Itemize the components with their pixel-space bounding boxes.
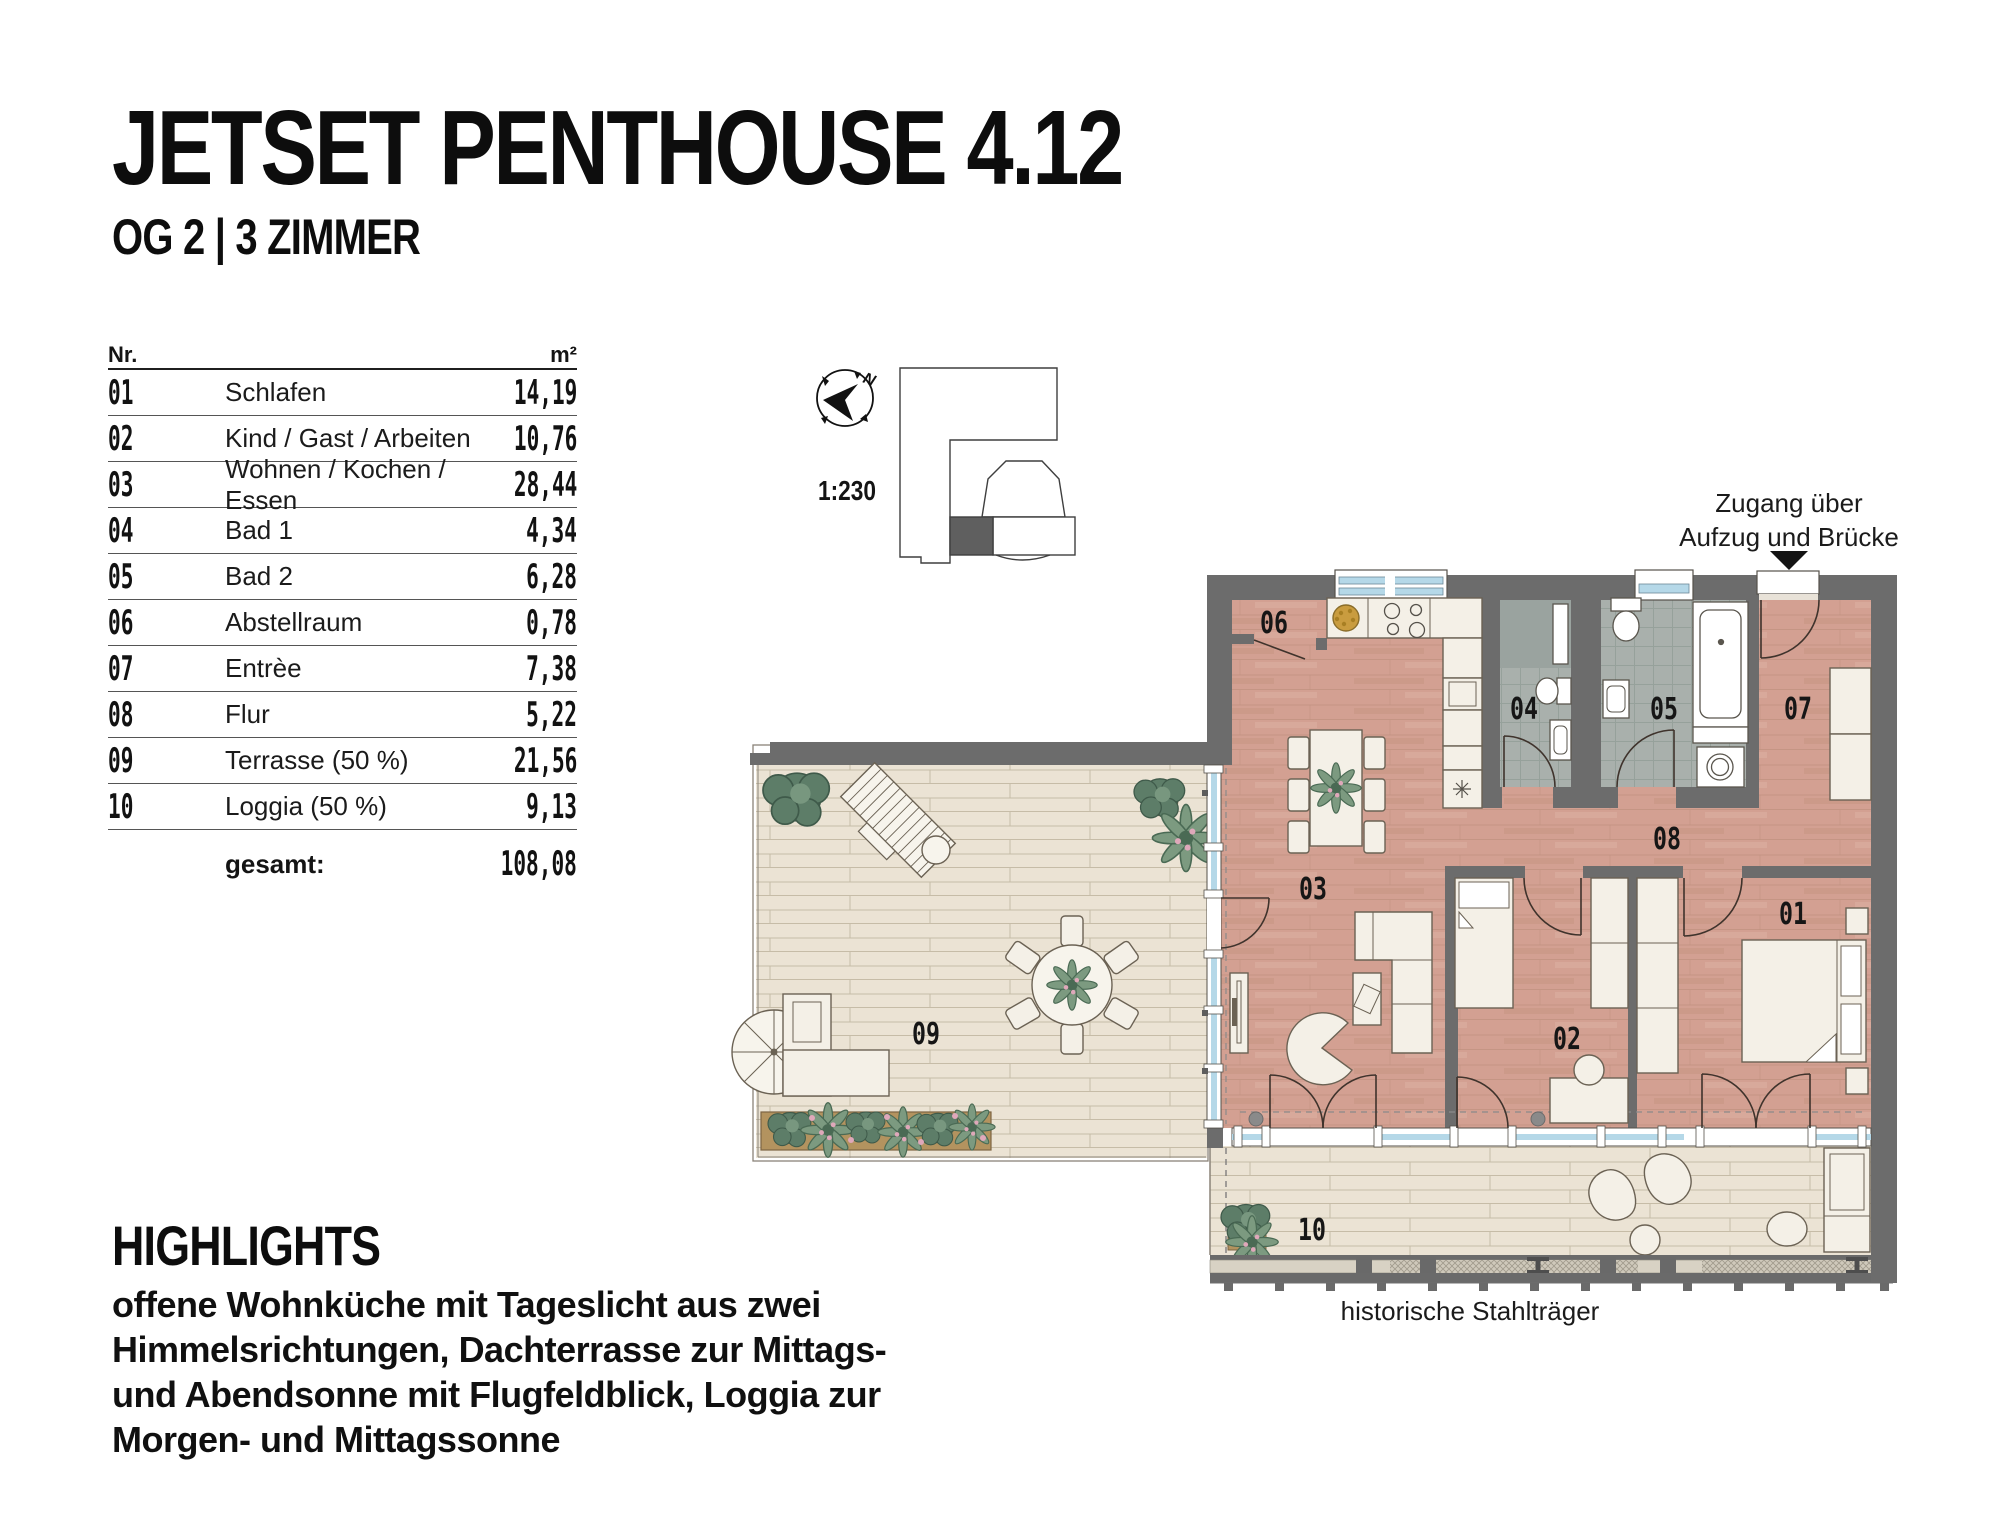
plant [763,773,829,826]
side-table [922,836,950,864]
entree-wardrobe [1830,668,1871,800]
loggia-window-wall [1232,1126,1871,1147]
terrace: 09 [732,742,1220,1161]
room-label-09: 09 [912,1017,940,1052]
steel-beam-label: historische Stahlträger [1341,1296,1600,1326]
room-label-02: 02 [1553,1022,1581,1057]
wardrobe [1637,878,1678,1073]
toilet [1613,611,1639,641]
room-label-04: 04 [1510,692,1538,727]
floor-plan: 09 10 [0,0,2000,1515]
room-label-06: 06 [1260,606,1288,641]
scale-label: 1:230 [818,475,876,506]
access-arrow-icon [1770,551,1808,570]
loggia-bench [1824,1148,1870,1252]
tv [1232,998,1237,1026]
toilet [1536,678,1558,704]
terrace-wall [750,742,1207,765]
loggia: 10 [1210,1144,1893,1326]
site-bay [982,461,1065,517]
entry-bridge [1757,571,1819,594]
room-label-10: 10 [1298,1213,1326,1248]
pouf [1767,1212,1807,1246]
plant [1134,779,1185,819]
page: JETSET PENTHOUSE 4.12 OG 2 | 3 ZIMMER Nr… [0,0,2000,1515]
steel-beams [1210,1255,1893,1291]
room-label-01: 01 [1779,897,1807,932]
nightstand [1846,1068,1868,1094]
site-map [900,368,1075,563]
washing-machine [1697,747,1744,787]
compass: N [817,370,878,426]
access-note-line1: Zugang über [1715,488,1863,518]
room-label-08: 08 [1653,822,1681,857]
bathtub [1693,602,1748,727]
plant [1311,763,1361,813]
access-note-line2: Aufzug und Brücke [1679,522,1899,552]
floor-dot [1249,1112,1263,1126]
room-label-03: 03 [1299,872,1327,907]
site-unit-marker [950,517,993,555]
nightstand [1846,908,1868,934]
room-label-07: 07 [1784,692,1812,727]
floor-dot [1531,1112,1545,1126]
room-label-05: 05 [1650,692,1678,727]
shower-glass [1553,604,1568,664]
pouf [1630,1225,1660,1255]
access-annotation: Zugang über Aufzug und Brücke [1679,488,1899,570]
desk-chair [1574,1055,1604,1085]
